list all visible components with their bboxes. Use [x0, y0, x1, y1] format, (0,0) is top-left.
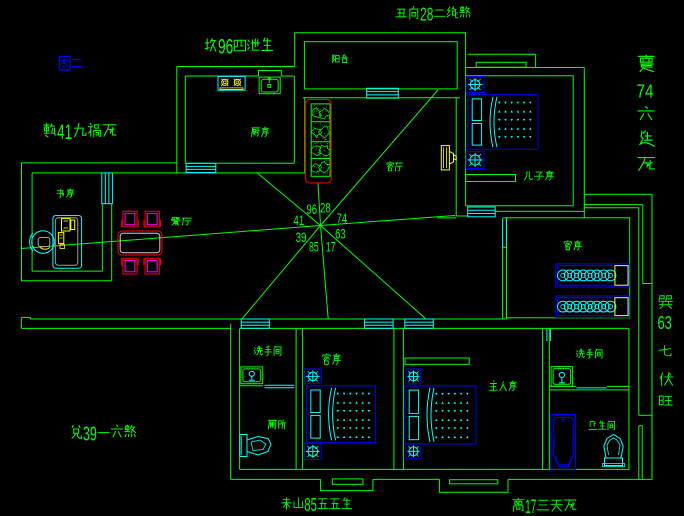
svg-text:28: 28: [420, 3, 433, 24]
svg-text:85: 85: [309, 240, 319, 255]
svg-text:63: 63: [335, 227, 346, 242]
svg-text:39: 39: [296, 230, 307, 245]
svg-text:28: 28: [320, 201, 331, 216]
svg-text:39: 39: [83, 422, 97, 445]
svg-text:74: 74: [337, 211, 348, 226]
svg-text:63: 63: [658, 312, 672, 333]
svg-text:74: 74: [637, 80, 654, 101]
svg-text:17: 17: [525, 496, 536, 516]
svg-text:41: 41: [294, 213, 305, 228]
svg-text:96: 96: [218, 35, 233, 58]
svg-text:96: 96: [307, 202, 318, 217]
svg-text:41: 41: [57, 121, 72, 144]
svg-text:85: 85: [304, 495, 317, 515]
svg-text:17: 17: [326, 240, 336, 255]
